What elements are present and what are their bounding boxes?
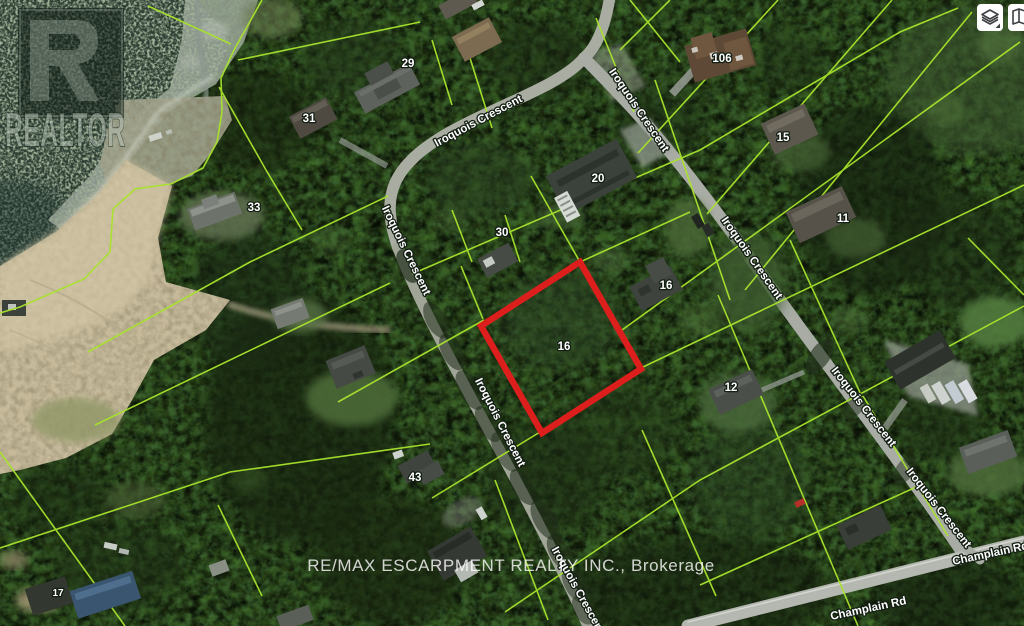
svg-text:REALTOR: REALTOR [5, 103, 126, 156]
svg-text:15: 15 [777, 132, 790, 144]
svg-text:106: 106 [712, 53, 731, 65]
svg-text:17: 17 [52, 588, 64, 599]
svg-text:29: 29 [402, 58, 415, 70]
svg-text:31: 31 [303, 113, 316, 125]
svg-text:16: 16 [558, 341, 571, 353]
svg-text:RE/MAX ESCARPMENT REALTY INC.,: RE/MAX ESCARPMENT REALTY INC., Brokerage [307, 556, 715, 575]
svg-text:33: 33 [248, 202, 261, 214]
svg-text:20: 20 [592, 173, 605, 185]
svg-text:11: 11 [837, 213, 850, 225]
svg-text:12: 12 [725, 382, 738, 394]
svg-text:43: 43 [409, 472, 422, 484]
svg-text:30: 30 [496, 227, 509, 239]
svg-text:16: 16 [660, 280, 673, 292]
